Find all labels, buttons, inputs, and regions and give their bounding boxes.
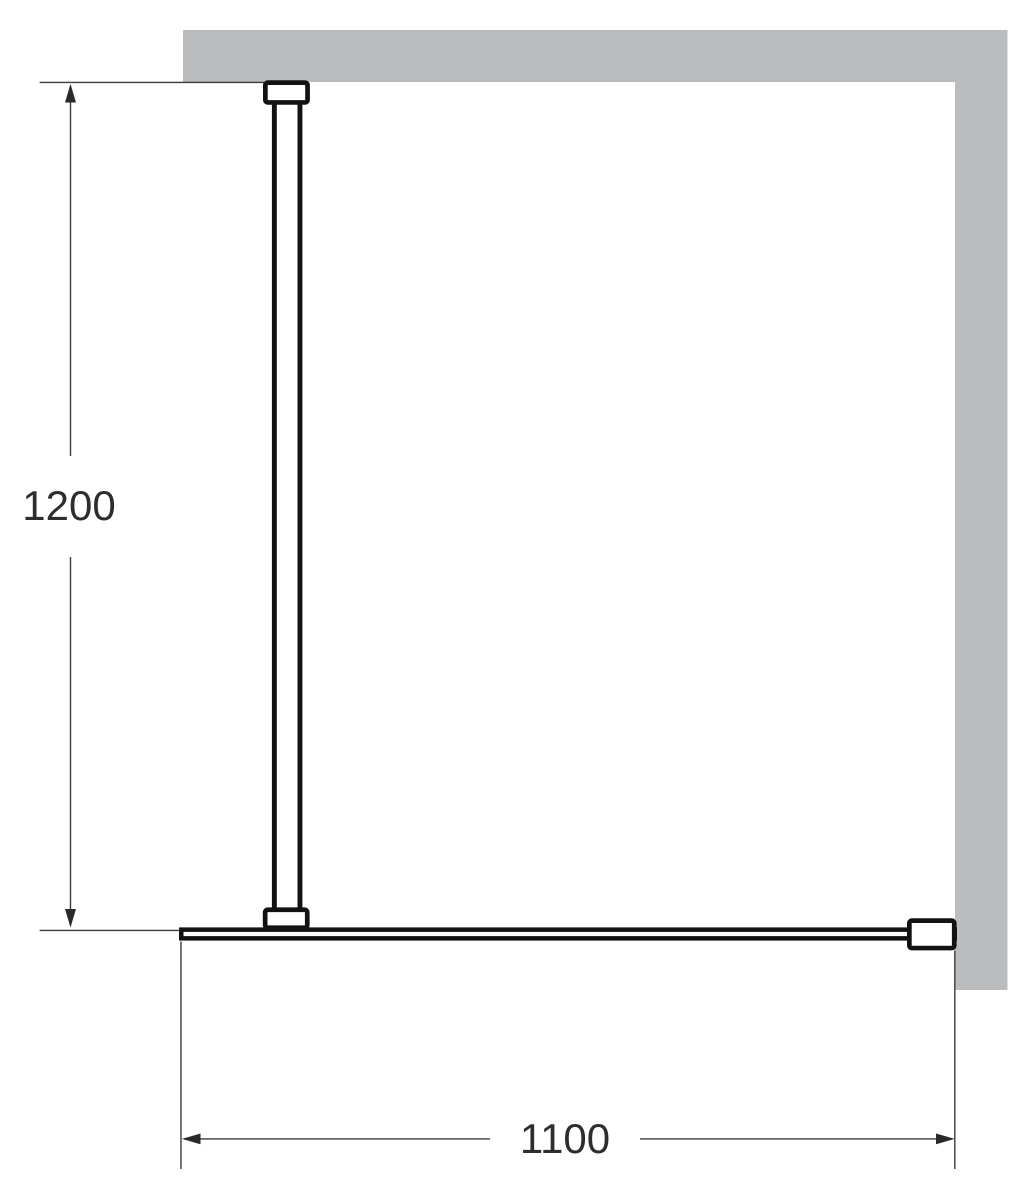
svg-text:1200: 1200 <box>22 482 115 529</box>
svg-text:1100: 1100 <box>520 1115 610 1162</box>
